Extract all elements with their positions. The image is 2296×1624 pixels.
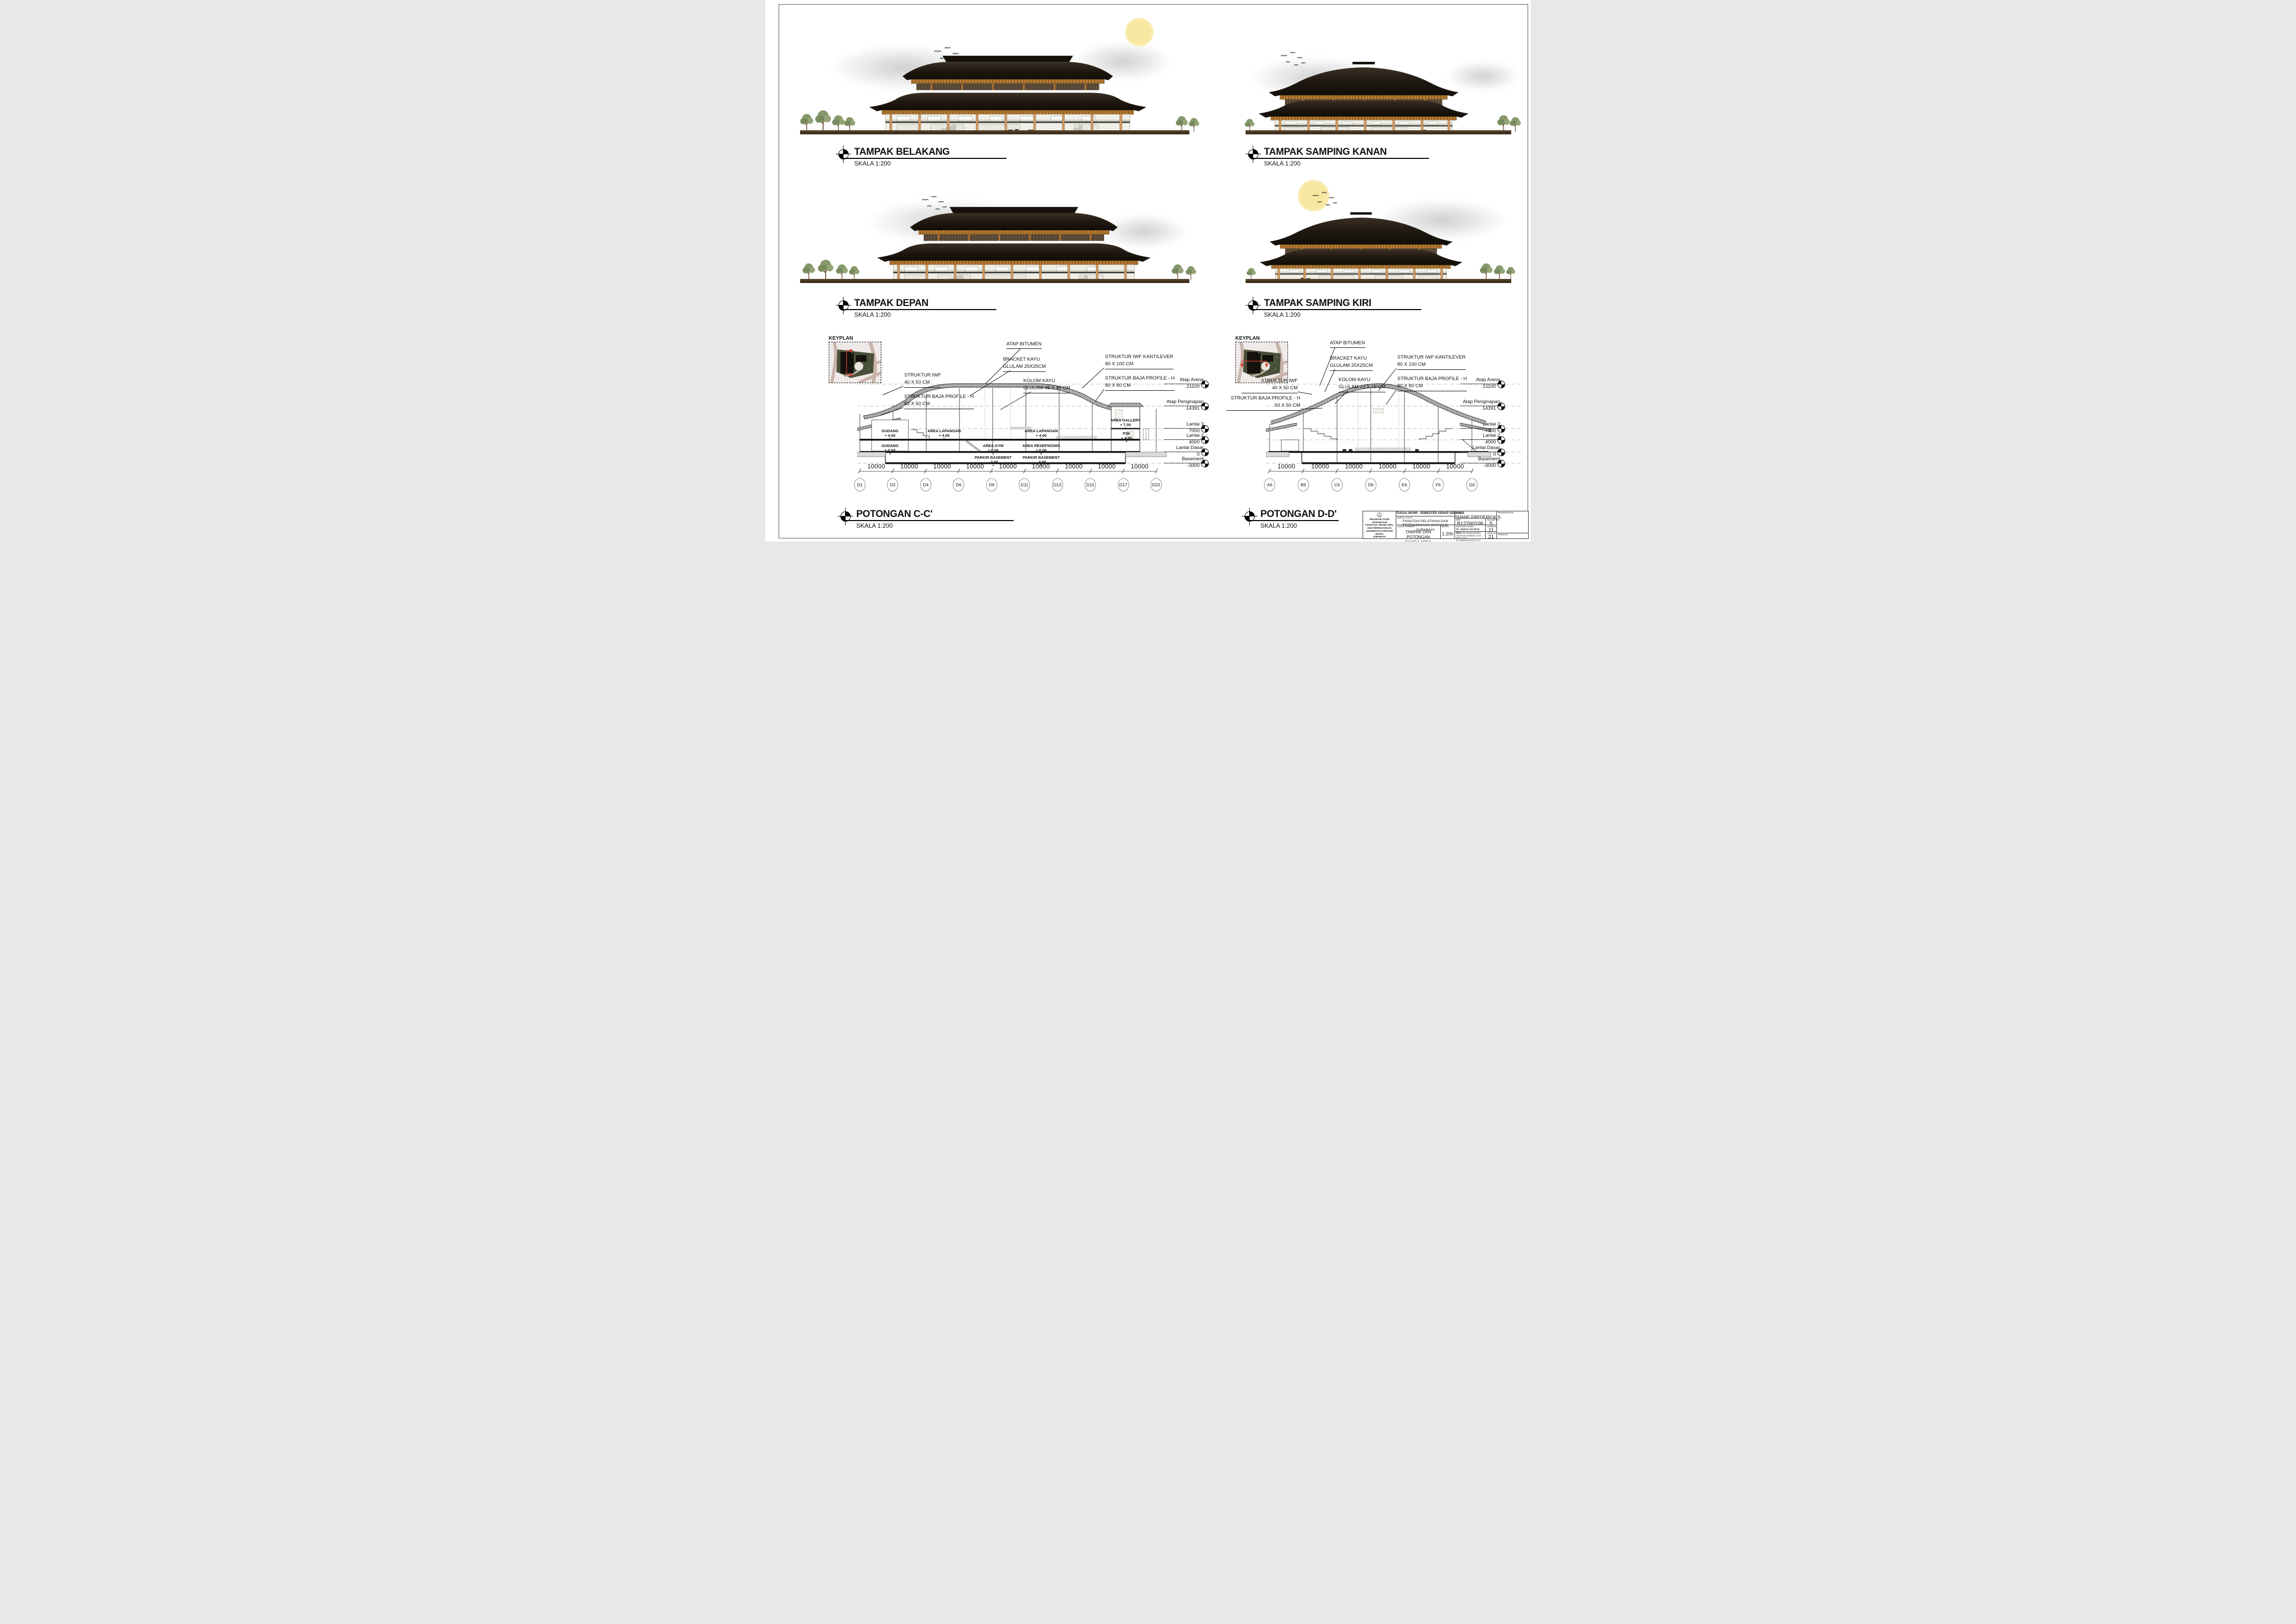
judul-tugas-label: JUDUL TUGAS <box>1396 516 1455 520</box>
tree <box>848 265 860 280</box>
level-marker: Atap Arena21100 <box>1143 378 1205 390</box>
birds-icon <box>1308 190 1344 210</box>
drawing-title: TAMPAK BELAKANG <box>854 147 950 158</box>
judul-gambar-value: TAMPAK DAN POTONGAN MASSA AREA LAPANGAN <box>1396 530 1440 542</box>
level-marker-icon <box>1497 449 1505 456</box>
level-marker-icon <box>1201 436 1209 444</box>
title-block-logo-cell: PROGRAM STUDI ARSITEKTUR FAKULTAS TEKNIK… <box>1363 511 1396 538</box>
level-marker-icon <box>1201 460 1209 467</box>
tree <box>814 107 832 132</box>
drawing-title: TAMPAK SAMPING KIRI <box>1264 298 1371 309</box>
annotation: BRACKET KAYU GLULAM 25X25CM <box>1003 356 1046 372</box>
dimension-tick <box>1268 468 1271 473</box>
annotation: STRUKTUR IWF 40 X 50 CM <box>1241 378 1298 393</box>
level-marker-icon <box>1497 403 1505 410</box>
title-rule <box>1249 520 1339 521</box>
tree <box>799 111 814 132</box>
drawing-scale: SKALA 1:200 <box>1264 160 1300 167</box>
jumlah-value: 21 <box>1486 535 1496 540</box>
grid-bubble: D13 <box>1052 478 1063 491</box>
university-logo-icon <box>1374 512 1385 517</box>
dimension-label: 10000 <box>992 463 1024 470</box>
title-block: PROGRAM STUDI ARSITEKTUR FAKULTAS TEKNIK… <box>1363 511 1529 539</box>
tree <box>801 262 816 280</box>
dimension-label: 10000 <box>1024 463 1057 470</box>
keyplan-map <box>829 342 881 383</box>
nrp-cell: NRP B12200106 <box>1455 519 1485 525</box>
sun <box>1125 18 1154 46</box>
dimension-label: 10000 <box>893 463 925 470</box>
tree <box>816 257 835 280</box>
level-marker-icon <box>1497 460 1505 467</box>
back-elevation-drawing <box>854 56 1162 133</box>
dimension-label: 10000 <box>860 463 893 470</box>
dimension-label: 10000 <box>1337 463 1371 470</box>
title-rule <box>843 158 1006 159</box>
grid-bubble: D4 <box>920 478 931 491</box>
judul-tugas-cell: JUDUL TUGAS FASILITAS PELATIHAN DAN PERT… <box>1396 516 1455 525</box>
dimension-label: 10000 <box>958 463 991 470</box>
mentor-pendamping-cell: MENTOR PENDAMPING TIMOTICIN KWANDA, B.SC… <box>1455 532 1485 538</box>
title-rule <box>845 520 1014 521</box>
annotation: ATAP BITUMEN <box>1330 340 1365 348</box>
annotation: STRUKTUR IWF KANTILEVER 80 X 100 CM <box>1397 354 1466 370</box>
dimension-label: 10000 <box>926 463 958 470</box>
grid-bubble: D9 <box>986 478 997 491</box>
annotation: KOLOM KAYU GLULAM 45 X 45 CM <box>1023 378 1070 393</box>
skala-label: SKALA <box>1441 525 1455 528</box>
title-rule <box>1253 158 1429 159</box>
nama-cell: NAMA SHANE FREDERICK S. <box>1455 511 1496 518</box>
annotation: STRUKTUR IWF 40 X 50 CM <box>904 372 941 388</box>
level-marker: Lantai 24000 <box>1440 433 1501 445</box>
tree <box>1505 266 1516 279</box>
drawing-scale: SKALA 1:200 <box>854 311 891 318</box>
room-label: P3K+ 4.00 <box>1121 431 1132 443</box>
level-marker-icon <box>1201 449 1209 456</box>
left-side-elevation-drawing <box>1256 210 1466 283</box>
room-label: AREA GYM± 0.00 <box>983 443 1003 456</box>
title-block-middle: TUGAS AKHIR - SEMESTER GENAP 2023/2024 J… <box>1396 511 1455 538</box>
dimension-ticks <box>859 471 1157 474</box>
dimension-label: 10000 <box>1058 463 1090 470</box>
drawing-title: POTONGAN C-C' <box>856 509 932 520</box>
keyplan-label: KEYPLAN <box>829 336 853 341</box>
title-block-right: NAMA SHANE FREDERICK S. NRP B12200106 KE… <box>1455 511 1496 538</box>
nrp-row: NRP B12200106 KELOMPOK 5 <box>1455 518 1496 525</box>
tree <box>1184 265 1198 280</box>
grid-bubble: D11 <box>1019 478 1030 491</box>
level-marker-icon <box>1201 403 1209 410</box>
front-elevation-drawing <box>862 207 1166 283</box>
tree <box>1187 116 1201 132</box>
grid-bubble: D2 <box>887 478 898 491</box>
ground-line <box>800 279 1189 283</box>
grid-bubble: G6 <box>1466 478 1478 491</box>
level-marker-icon <box>1497 381 1505 388</box>
level-marker: Atap Arena21100 <box>1440 378 1501 390</box>
level-marker-icon <box>1201 381 1209 388</box>
grid-bubble: D22 <box>1151 478 1162 491</box>
annotation: KOLOM KAYU GLULAM 45 X 45 CM <box>1339 376 1386 392</box>
dimension-label: 10000 <box>1371 463 1404 470</box>
nama-label: NAMA <box>1455 511 1496 514</box>
drawing-scale: SKALA 1:200 <box>1264 311 1300 318</box>
dimension-label: 10000 <box>1270 463 1303 470</box>
room-label: GUDANG± 0.00 <box>881 443 898 456</box>
tree <box>1493 264 1506 280</box>
drawing-title: POTONGAN D-D' <box>1260 509 1337 520</box>
dimension-label: 10000 <box>1123 463 1156 470</box>
tree <box>1509 115 1522 132</box>
grid-bubble: F6 <box>1433 478 1444 491</box>
tree <box>1479 262 1494 280</box>
level-marker-icon <box>1201 425 1209 433</box>
dimension-ticks <box>1269 471 1472 474</box>
pengesahan-label: PENGESAHAN <box>1497 511 1528 514</box>
drawing-title: TAMPAK DEPAN <box>854 298 928 309</box>
title-rule <box>843 309 996 310</box>
level-marker-icon <box>1497 436 1505 444</box>
tree <box>835 263 849 280</box>
grid-bubble: A6 <box>1264 478 1275 491</box>
mentor-pendamping-row: MENTOR PENDAMPING TIMOTICIN KWANDA, B.SC… <box>1455 531 1496 538</box>
grid-bubble-row: D1D2D4D6D9D11D13D15D17D22 <box>854 478 1162 491</box>
judul-gambar-row: JUDUL GAMBAR TAMPAK DAN POTONGAN MASSA A… <box>1396 525 1455 538</box>
dimension-row: 1000010000100001000010000100001000010000… <box>860 463 1156 470</box>
skala-cell: SKALA 1:200 <box>1440 525 1455 538</box>
drawing-title: TAMPAK SAMPING KANAN <box>1264 147 1387 158</box>
mentor-pendamping-value: TIMOTICIN KWANDA, B.SC., MRP., PH.D. IR.… <box>1455 535 1485 542</box>
level-marker-icon <box>1497 425 1505 433</box>
tanggal-cell: TANGGAL <box>1497 533 1528 538</box>
lembar-cell: LEMBAR 11 <box>1485 525 1496 531</box>
mentor-utama-row: MENTOR UTAMA IR. ANDHI WIJAYA, M.T. LEMB… <box>1455 525 1496 531</box>
grid-bubble: E6 <box>1399 478 1410 491</box>
annotation: STRUKTUR BAJA PROFILE - H 50 X 50 CM <box>1226 395 1300 411</box>
dimension-tick <box>858 468 861 473</box>
keyplan-map <box>1235 342 1288 383</box>
dimension-label: 10000 <box>1303 463 1337 470</box>
tree <box>1246 267 1257 280</box>
grid-bubble-row: A6B6C6D6E6F6G6 <box>1264 478 1478 491</box>
tanggal-label: TANGGAL <box>1497 533 1528 536</box>
dimension-label: 10000 <box>1404 463 1438 470</box>
ground-line <box>1246 130 1511 134</box>
level-marker: Atap Penginapan14391 <box>1440 399 1501 412</box>
room-label: AREA RESEPSIONIS± 0.00 <box>1022 443 1060 456</box>
drawing-sheet: TAMPAK BELAKANG SKALA 1:200 TAMPAK SAMPI… <box>765 0 1531 542</box>
title-rule <box>1253 309 1421 310</box>
annotation: ATAP BITUMEN <box>1006 341 1042 349</box>
ground-line <box>800 130 1189 134</box>
room-label: AREA GALLERY+ 7.00 <box>1111 418 1141 430</box>
drawing-scale: SKALA 1:200 <box>854 160 891 167</box>
annotation: STRUKTUR IWF KANTILEVER 80 X 100 CM <box>1105 354 1174 369</box>
annotation: BRACKET KAYU GLULAM 25X25CM <box>1330 355 1373 371</box>
grid-bubble: D6 <box>953 478 964 491</box>
judul-gambar-label: JUDUL GAMBAR <box>1396 525 1440 528</box>
judul-gambar-cell: JUDUL GAMBAR TAMPAK DAN POTONGAN MASSA A… <box>1396 525 1440 538</box>
grid-bubble: D15 <box>1085 478 1096 491</box>
jumlah-cell: JUMLAH 21 <box>1485 532 1496 538</box>
institution-text: PROGRAM STUDI ARSITEKTUR FAKULTAS TEKNIK… <box>1363 518 1396 538</box>
assignment-header: TUGAS AKHIR - SEMESTER GENAP 2023/2024 <box>1396 511 1455 516</box>
right-side-elevation-drawing <box>1253 62 1474 133</box>
grid-bubble: D17 <box>1118 478 1129 491</box>
grid-bubble: D1 <box>854 478 865 491</box>
level-marker: Atap Penginapan14391 <box>1143 399 1205 412</box>
ground-line <box>1246 279 1511 283</box>
room-label: GUDANG+ 4.00 <box>881 429 898 441</box>
room-label: AREA LAPANGAN+ 4.00 <box>1025 429 1058 441</box>
level-marker: Lantai 24000 <box>1143 433 1205 445</box>
kelompok-cell: KELOMPOK 5 <box>1485 519 1496 525</box>
grid-bubble: D6 <box>1365 478 1376 491</box>
title-block-pengesahan: PENGESAHAN TANGGAL <box>1496 511 1528 538</box>
room-label: AREA LAPANGAN+ 4.00 <box>928 429 961 441</box>
section-cc-panel: KEYPLAN ATAP BITUMEN BRACKET KAYU GLULAM… <box>816 335 1225 503</box>
tree <box>1170 263 1185 280</box>
grid-bubble: B6 <box>1298 478 1309 491</box>
drawing-scale: SKALA 1:200 <box>856 522 893 529</box>
grid-bubble: C6 <box>1331 478 1343 491</box>
annotation: STRUKTUR BAJA PROFILE - H 50 X 50 CM <box>904 393 974 409</box>
dimension-label: 10000 <box>1438 463 1472 470</box>
keyplan-label: KEYPLAN <box>1235 336 1260 341</box>
mentor-utama-cell: MENTOR UTAMA IR. ANDHI WIJAYA, M.T. <box>1455 525 1485 531</box>
drawing-scale: SKALA 1:200 <box>1260 522 1297 529</box>
dimension-label: 10000 <box>1090 463 1123 470</box>
section-dd-panel: KEYPLAN ATAP BITUMEN BRACKET KAYU GLULAM… <box>1225 335 1531 503</box>
pengesahan-cell: PENGESAHAN <box>1497 511 1528 533</box>
skala-value: 1:200 <box>1441 531 1455 536</box>
